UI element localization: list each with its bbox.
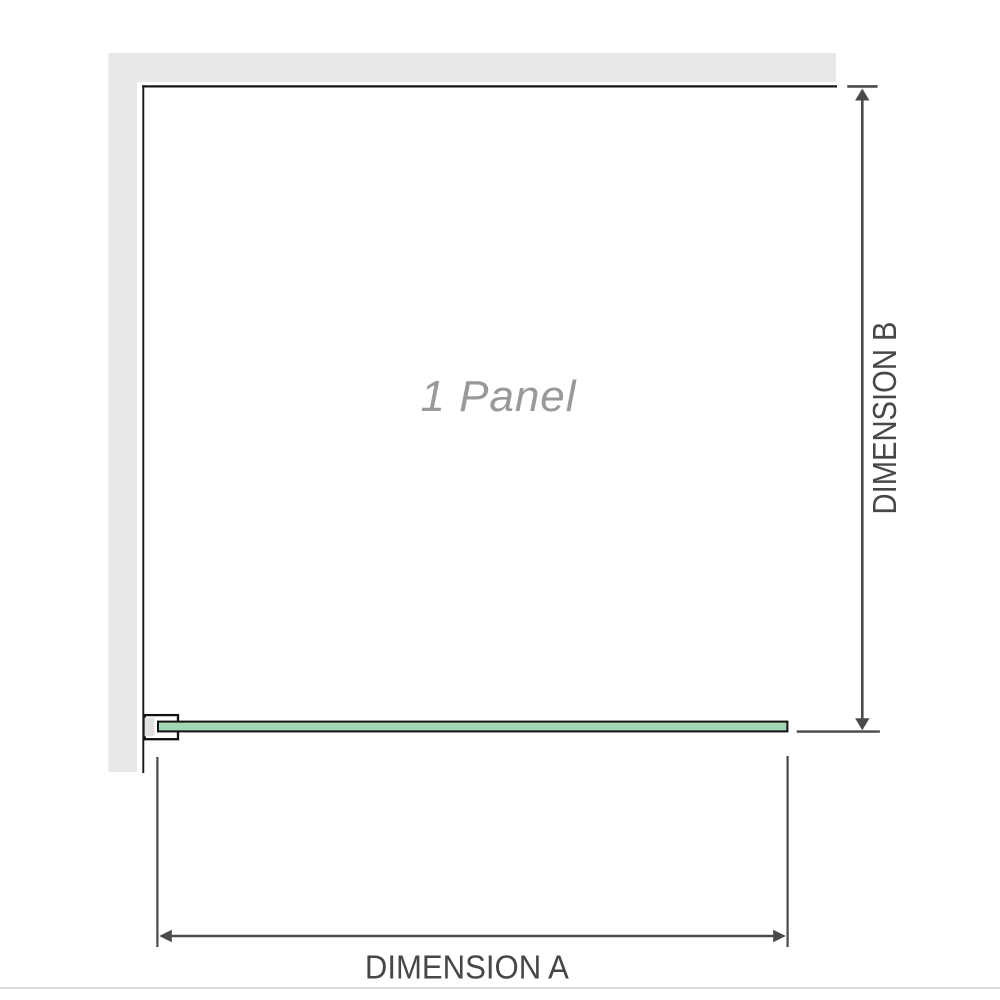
svg-text:DIMENSION B: DIMENSION B (866, 322, 903, 515)
svg-text:1 Panel: 1 Panel (421, 372, 577, 421)
svg-text:DIMENSION A: DIMENSION A (365, 949, 569, 986)
